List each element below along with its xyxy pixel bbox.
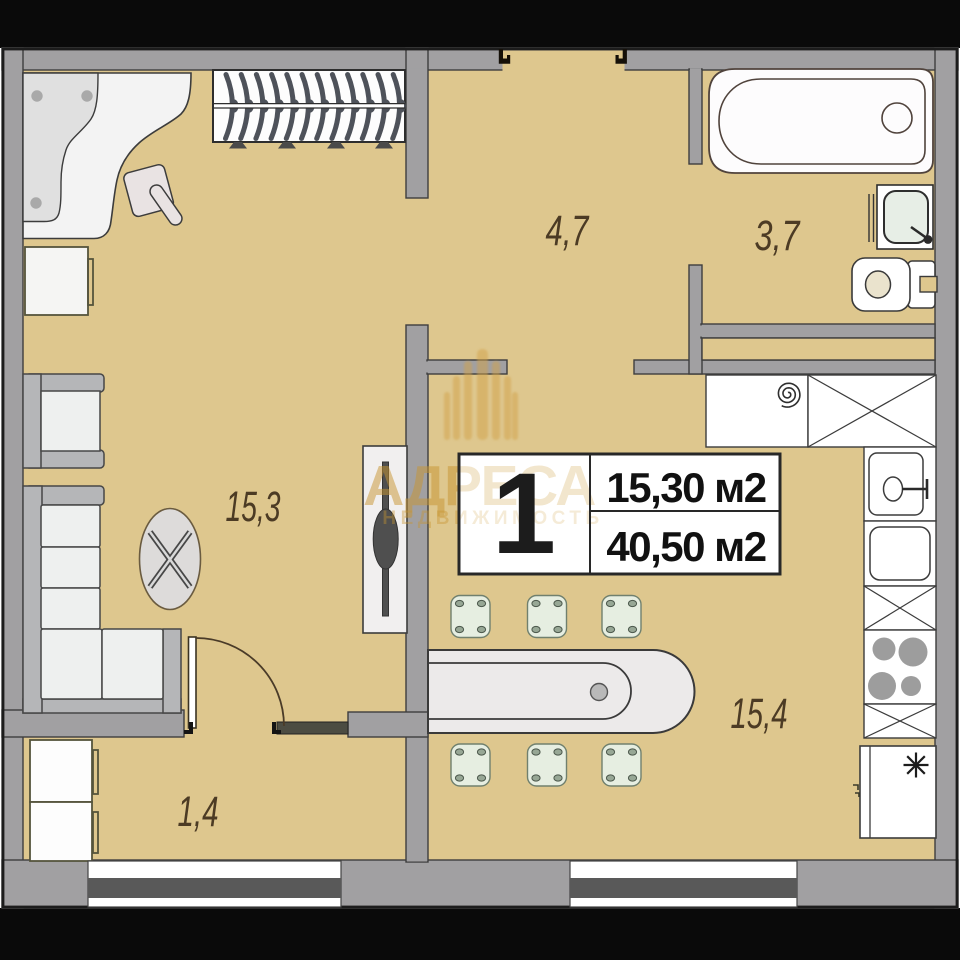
svg-text:3,7: 3,7	[755, 212, 802, 260]
svg-text:4,7: 4,7	[546, 207, 590, 255]
svg-text:40,50 м2: 40,50 м2	[606, 523, 765, 570]
svg-text:1,4: 1,4	[178, 788, 219, 836]
svg-text:15,4: 15,4	[731, 690, 788, 738]
svg-text:15,3: 15,3	[226, 483, 281, 531]
svg-text:1: 1	[492, 450, 556, 578]
svg-text:15,30 м2: 15,30 м2	[606, 464, 765, 511]
